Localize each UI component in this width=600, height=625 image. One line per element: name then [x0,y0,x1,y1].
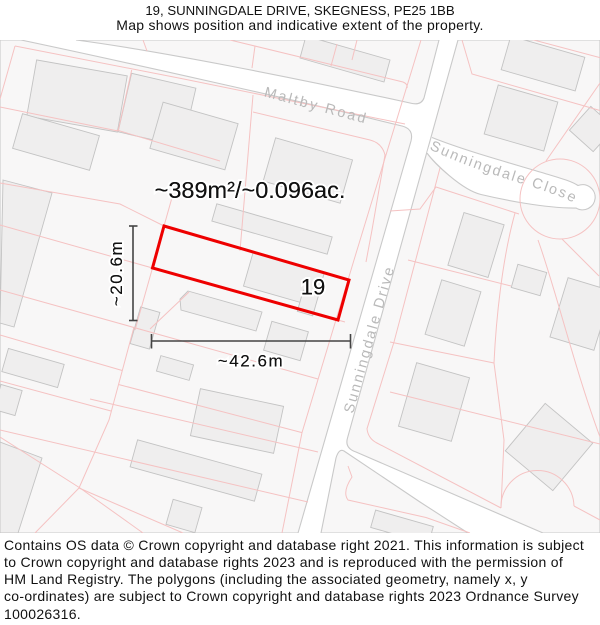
svg-text:~389m²/~0.096ac.: ~389m²/~0.096ac. [155,177,346,203]
svg-text:19: 19 [301,275,325,300]
svg-text:~42.6m: ~42.6m [218,352,284,371]
svg-text:~20.6m: ~20.6m [107,240,126,306]
